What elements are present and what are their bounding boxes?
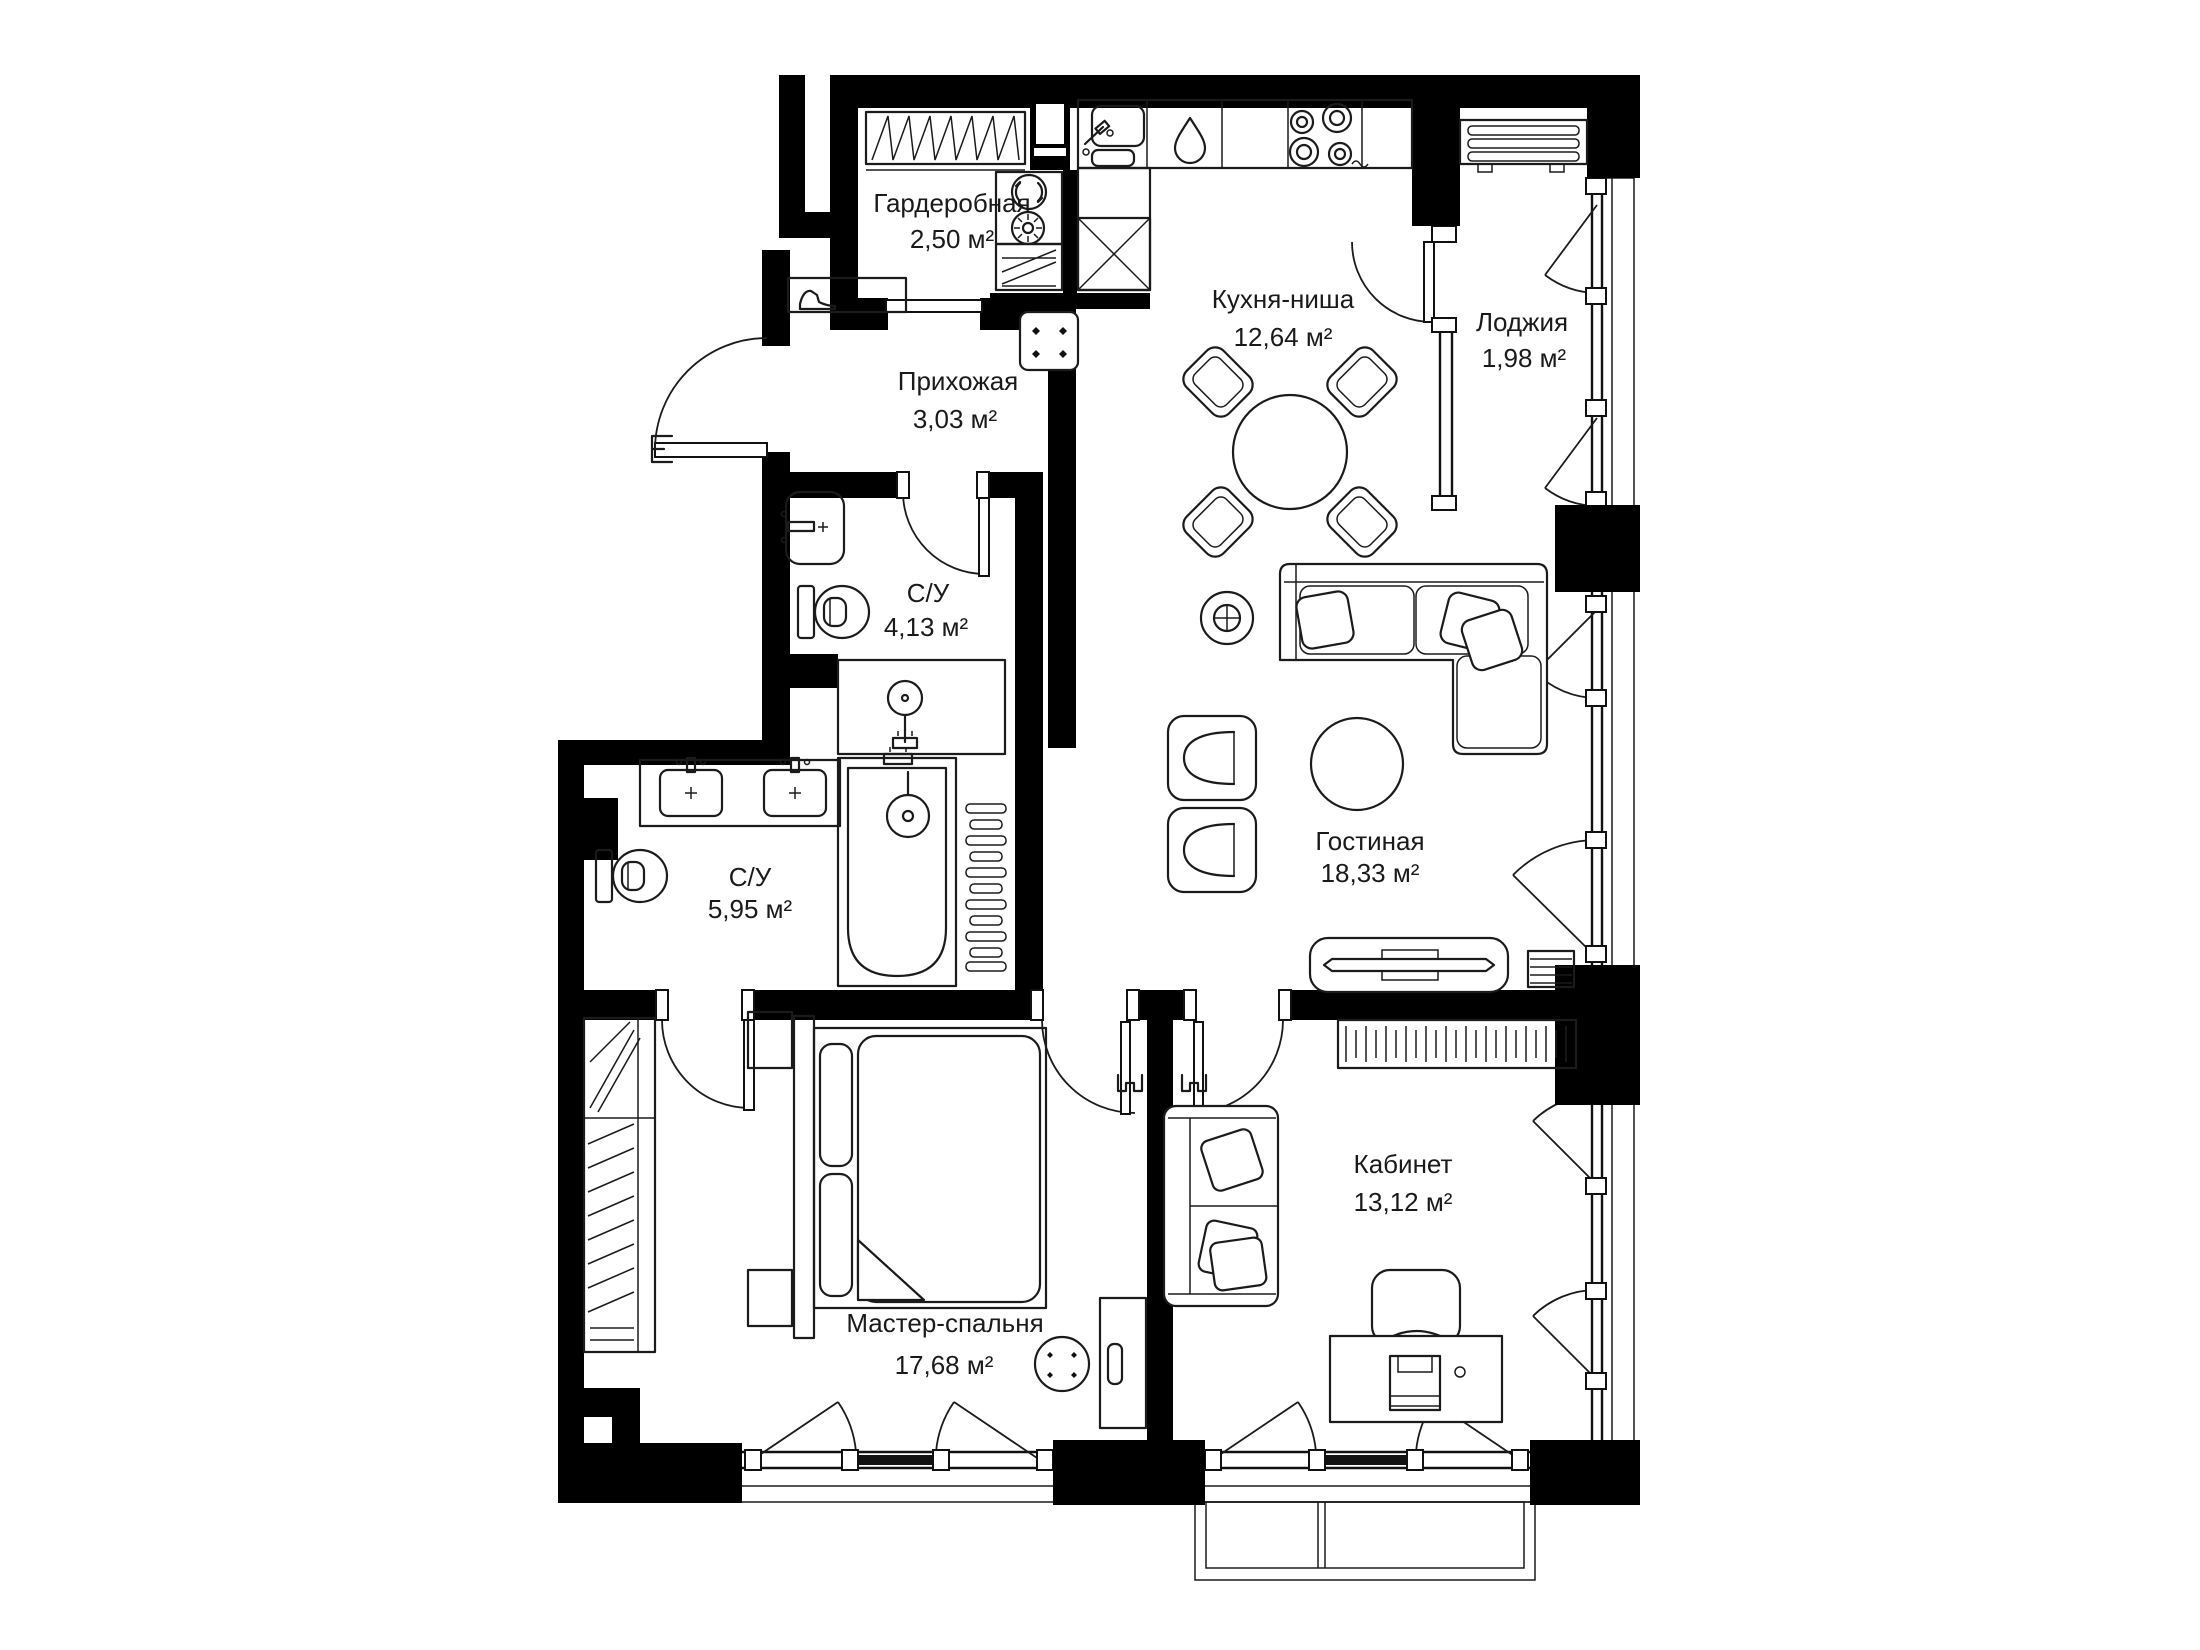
room-bathroom-master — [596, 747, 1006, 986]
room-loggia — [1460, 120, 1587, 172]
room-study — [1164, 1020, 1576, 1422]
towel-radiator-icon — [966, 804, 1006, 971]
wardrobe-cabinet-icon — [584, 1018, 655, 1352]
fridge-icon — [1078, 218, 1150, 290]
bathtub-icon — [838, 747, 956, 986]
washbasin-icon — [782, 492, 845, 564]
bedroom-door — [1031, 990, 1142, 1114]
label-bathroom-small: С/У — [907, 578, 950, 608]
coffee-table-icon — [1311, 718, 1403, 810]
area-kitchen: 12,64 м² — [1234, 322, 1333, 352]
floor-plan-page: Гардеробная 2,50 м² Прихожая 3,03 м² Кух… — [0, 0, 2200, 1650]
room-master-bedroom — [584, 1012, 1146, 1428]
label-study: Кабинет — [1354, 1149, 1453, 1179]
label-wardrobe: Гардеробная — [873, 188, 1030, 218]
radiator-shelf-icon — [1338, 1020, 1576, 1068]
study-sofa-icon — [1164, 1106, 1278, 1306]
floor-plan: Гардеробная 2,50 м² Прихожая 3,03 м² Кух… — [0, 0, 2200, 1650]
area-hallway: 3,03 м² — [913, 404, 998, 434]
area-living: 18,33 м² — [1321, 858, 1420, 888]
area-wardrobe: 2,50 м² — [910, 224, 995, 254]
area-bathroom-master: 5,95 м² — [708, 894, 793, 924]
dishwasher-drop-icon — [1175, 118, 1205, 163]
stool-round-icon — [1035, 1337, 1089, 1391]
desk-icon — [1330, 1270, 1502, 1422]
shelf-icon — [996, 244, 1062, 290]
dining-table-icon — [1178, 342, 1401, 561]
kitchen-counter — [1078, 100, 1412, 290]
armchair-icon — [1168, 716, 1256, 800]
wardrobe-opening — [886, 300, 982, 312]
area-loggia: 1,98 м² — [1482, 343, 1567, 373]
label-master-bedroom: Мастер-спальня — [846, 1308, 1043, 1338]
ac-unit-icon — [1460, 120, 1587, 172]
bathroom-small-door — [897, 472, 989, 576]
room-living — [1168, 564, 1574, 992]
area-bathroom-small: 4,13 м² — [884, 612, 969, 642]
label-bathroom-master: С/У — [729, 862, 772, 892]
label-hallway: Прихожая — [898, 366, 1018, 396]
label-kitchen: Кухня-ниша — [1212, 284, 1355, 314]
stool-icon — [1020, 312, 1078, 370]
toilet-icon — [798, 586, 869, 638]
bed-icon — [748, 1012, 1046, 1338]
study-door — [1182, 990, 1291, 1114]
shower-icon — [838, 660, 1005, 754]
balcony — [1195, 1502, 1535, 1580]
kitchen-sink-icon — [1083, 106, 1144, 166]
label-loggia: Лоджия — [1476, 307, 1568, 337]
area-study: 13,12 м² — [1354, 1187, 1453, 1217]
double-vanity-icon — [640, 758, 840, 826]
floor-lamp-icon — [1201, 592, 1253, 644]
stove-icon — [1290, 104, 1368, 167]
area-master-bedroom: 17,68 м² — [895, 1350, 994, 1380]
sofa-icon — [1280, 564, 1547, 754]
tv-console-icon — [1310, 938, 1508, 992]
label-living: Гостиная — [1315, 826, 1424, 856]
clothes-rail-icon — [866, 112, 1025, 170]
armchair-icon — [1168, 808, 1256, 892]
bathroom-master-door — [656, 990, 754, 1110]
dresser-icon — [1100, 1298, 1146, 1428]
entry-door — [652, 338, 767, 462]
